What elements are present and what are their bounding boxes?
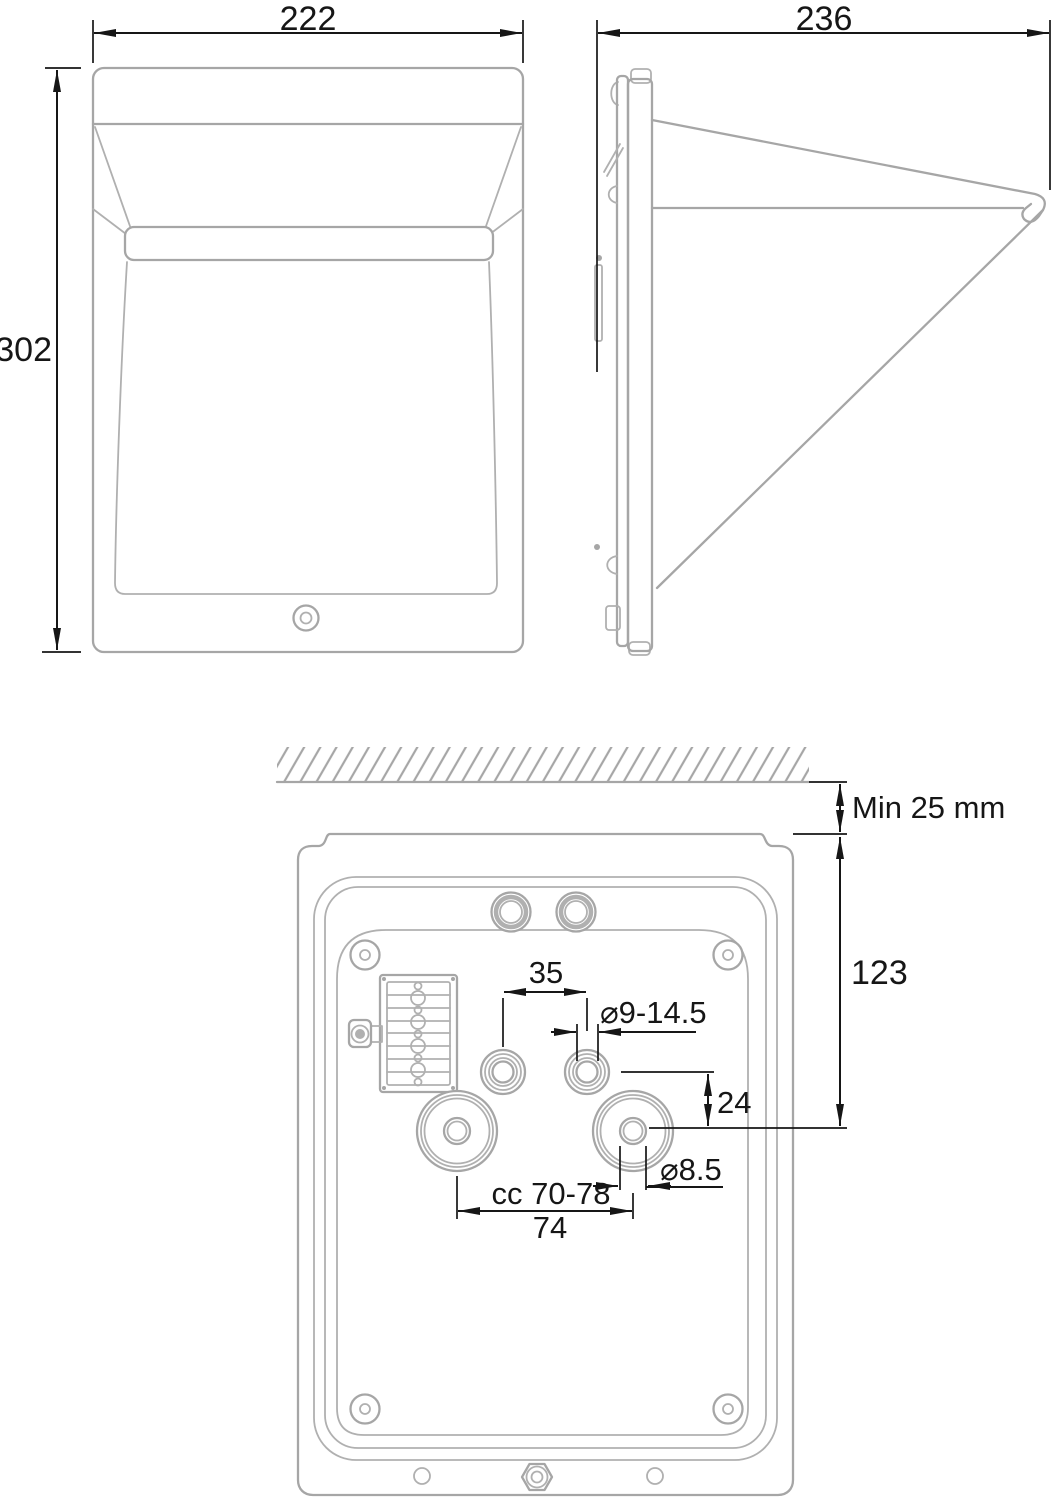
front-shell-outline <box>93 68 523 652</box>
dim-hole-spacing: 35 <box>503 955 587 1047</box>
front-chamfer-right <box>490 209 523 234</box>
side-bottom-tab <box>629 642 650 655</box>
front-screw-outer <box>294 606 319 631</box>
clearance-label: Min 25 mm <box>852 790 1005 825</box>
front-screw-inner <box>301 613 312 624</box>
dim-center-distance: cc 70-78 74 <box>457 1176 633 1245</box>
technical-drawing-page: 222 302 236 <box>0 0 1057 1500</box>
side-view <box>594 69 1045 655</box>
cable-gland-right <box>557 893 596 932</box>
bottom-hole-left <box>414 1468 430 1484</box>
keyhole-offset-label: 24 <box>717 1085 751 1120</box>
side-depth-label: 236 <box>796 0 853 38</box>
block-corner-dot <box>451 1086 455 1090</box>
front-view <box>93 68 523 652</box>
front-height-label: 302 <box>0 331 52 369</box>
side-latch-bump-upper <box>609 186 617 203</box>
front-lens-band <box>125 227 493 260</box>
front-chamfer-left <box>93 209 126 234</box>
corner-screw <box>351 1395 380 1424</box>
dim-front-width: 222 <box>93 0 523 63</box>
terminal-screws <box>411 983 425 1086</box>
hole-diameter-label: ⌀9-14.5 <box>600 995 707 1030</box>
corner-screw <box>714 941 743 970</box>
block-corner-dot <box>451 977 455 981</box>
side-wall-plate <box>617 76 628 646</box>
side-terminal-edge <box>595 265 602 341</box>
keyhole-hole-diameter-label: ⌀8.5 <box>660 1152 722 1187</box>
bottom-hole-right <box>647 1468 663 1484</box>
corner-screw <box>351 941 380 970</box>
block-corner-dot <box>382 1086 386 1090</box>
side-latch-bump-lower <box>607 556 617 574</box>
center-distance-nominal-label: 74 <box>533 1210 567 1245</box>
wall-hatch <box>277 747 809 782</box>
mounting-hole-right <box>565 1050 609 1094</box>
luminaire-dimension-drawing: 222 302 236 <box>0 0 1057 1500</box>
corner-screw <box>714 1395 743 1424</box>
side-hood-outline <box>652 120 1045 588</box>
dim-top-to-keyhole: 123 <box>649 837 908 1128</box>
dim-wall-clearance: Min 25 mm <box>793 782 1005 834</box>
center-distance-label: cc 70-78 <box>492 1176 611 1211</box>
ground-connector <box>349 1020 382 1047</box>
dim-hole-diameter: ⌀9-14.5 <box>551 995 707 1061</box>
cable-gland-left <box>492 893 531 932</box>
mounting-hole-left <box>481 1050 525 1094</box>
back-view <box>277 747 809 1495</box>
block-corner-dot <box>382 977 386 981</box>
front-width-label: 222 <box>280 0 337 38</box>
side-top-tab <box>631 69 651 83</box>
hole-spacing-label: 35 <box>529 955 563 990</box>
ground-screw-head <box>355 1029 365 1039</box>
bottom-hex-nut <box>522 1464 552 1490</box>
side-screw-dot-lower <box>594 544 600 550</box>
dim-front-height: 302 <box>0 68 81 652</box>
keyhole-slot-left <box>417 1091 497 1171</box>
front-window-outline <box>115 262 497 594</box>
dim-side-depth: 236 <box>597 0 1050 372</box>
side-body-plate <box>628 79 652 651</box>
top-to-keyhole-label: 123 <box>851 954 908 992</box>
terminal-block <box>380 975 457 1092</box>
